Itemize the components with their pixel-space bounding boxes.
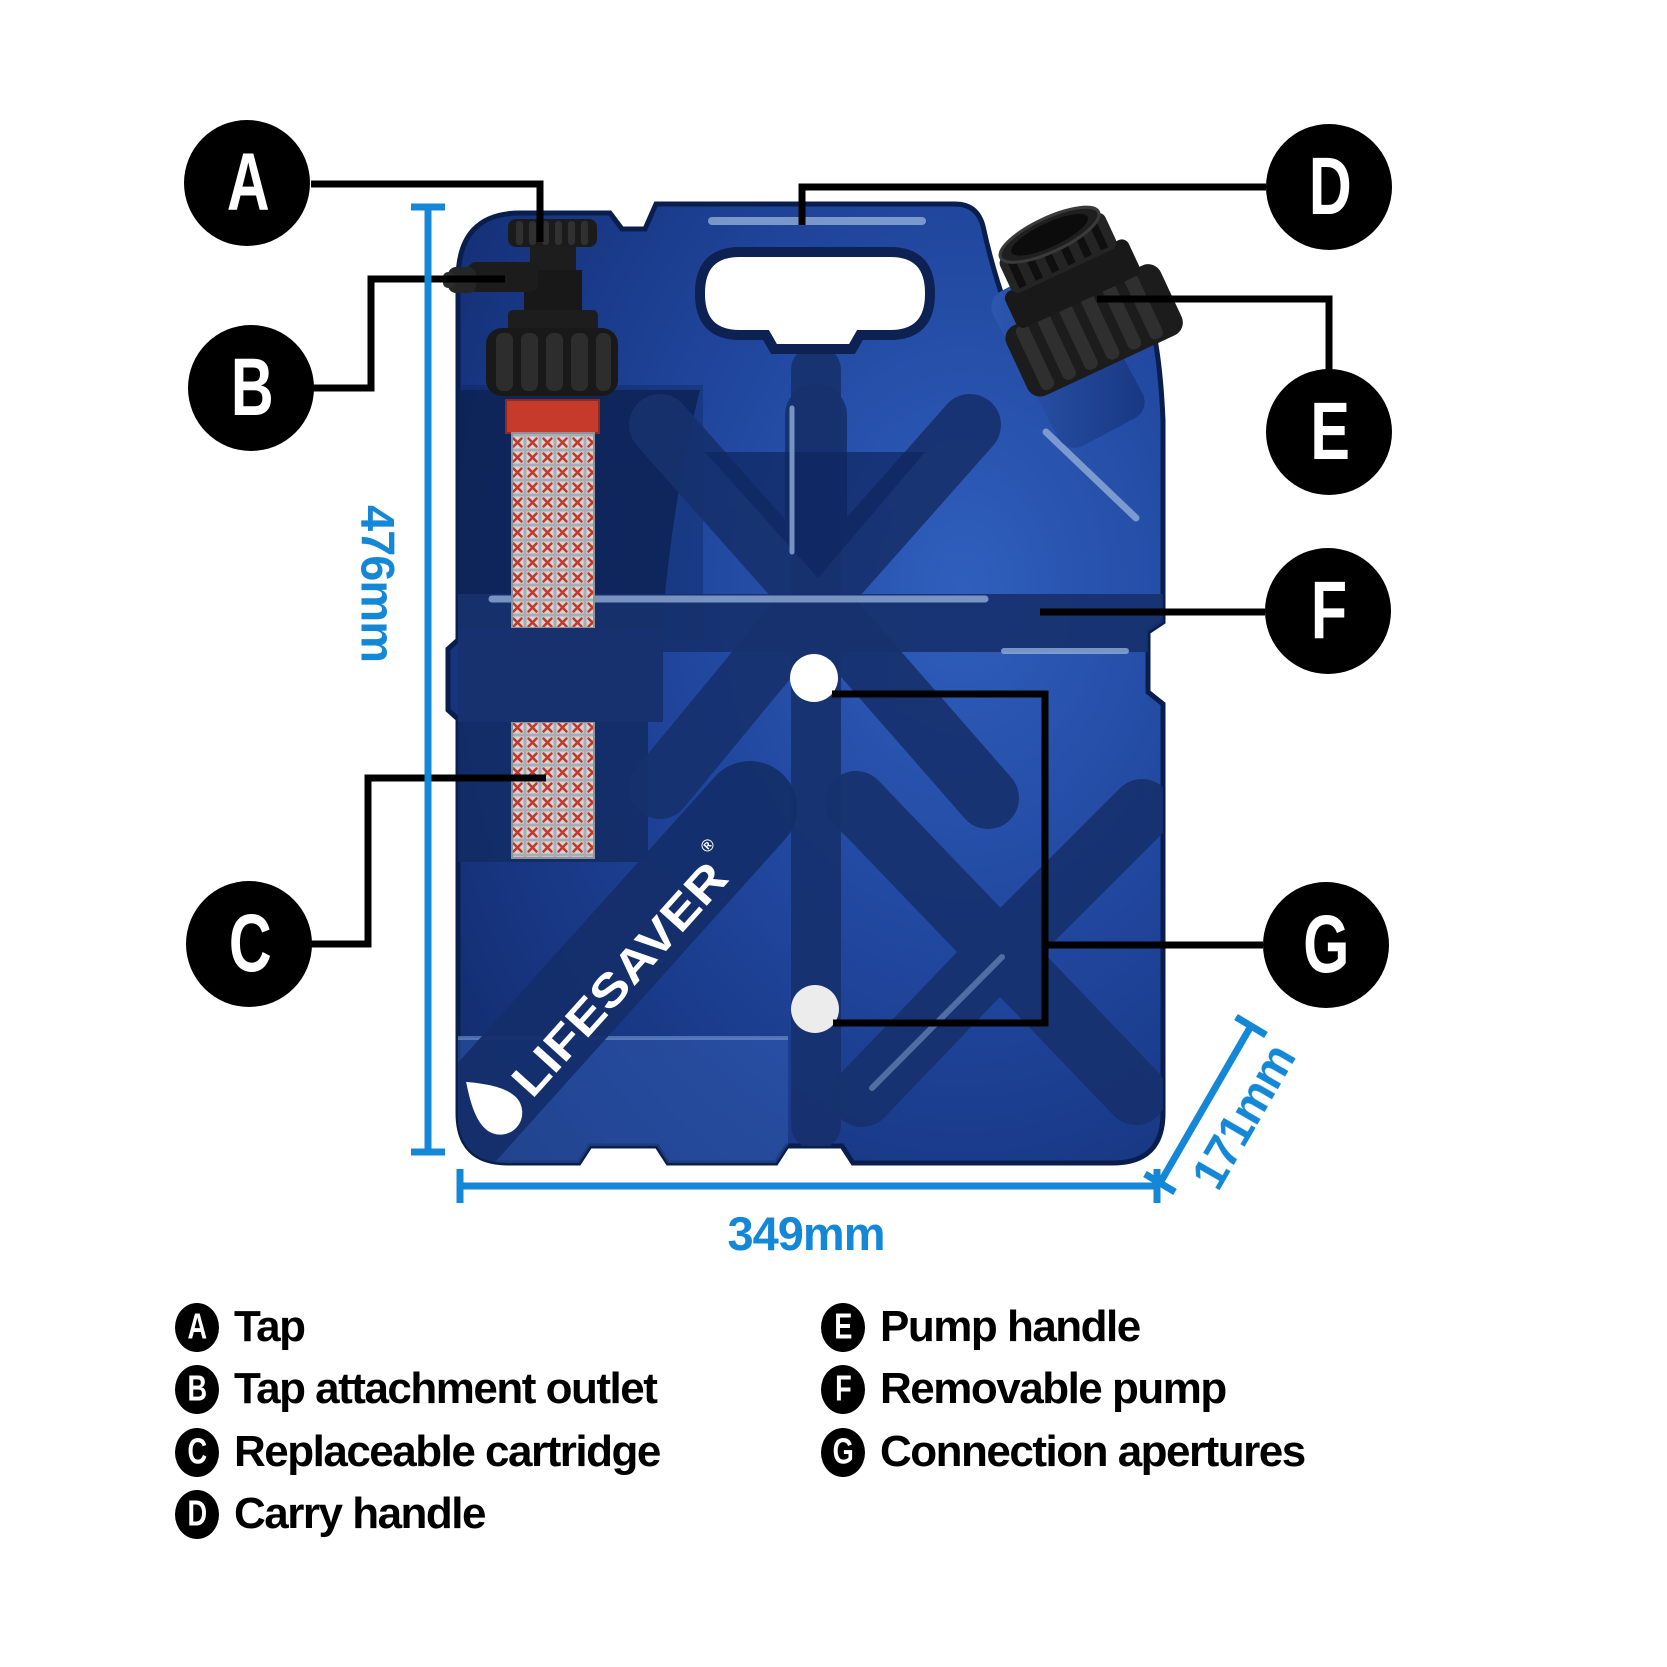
connection-aperture-bottom	[791, 985, 839, 1033]
height-dimension-label: 476mm	[351, 464, 406, 704]
legend-badge-a: A	[175, 1303, 219, 1352]
legend-item-removable-pump: F Removable pump	[821, 1363, 1226, 1415]
legend-item-tap-attachment-outlet: B Tap attachment outlet	[175, 1363, 656, 1415]
callout-marker-f: F	[1265, 548, 1391, 674]
carry-handle-hole	[700, 252, 930, 349]
callout-marker-b: B	[188, 325, 314, 451]
height-dimension-line	[411, 207, 445, 1152]
diagram-canvas: LIFESAVER ®	[0, 0, 1667, 1667]
jerrycan-illustration: LIFESAVER ®	[0, 0, 1667, 1667]
legend-badge-f: F	[821, 1365, 865, 1414]
legend-item-pump-handle: E Pump handle	[821, 1301, 1140, 1353]
callout-marker-a: A	[184, 120, 310, 246]
callout-marker-g: G	[1263, 882, 1389, 1008]
callout-marker-d: D	[1266, 124, 1392, 250]
legend-item-replaceable-cartridge: C Replaceable cartridge	[175, 1426, 660, 1478]
legend-badge-d: D	[175, 1490, 219, 1539]
legend-item-carry-handle: D Carry handle	[175, 1488, 485, 1540]
legend-item-connection-apertures: G Connection apertures	[821, 1426, 1305, 1478]
connection-aperture-top	[790, 654, 838, 702]
legend-badge-b: B	[175, 1365, 219, 1414]
legend-badge-e: E	[821, 1303, 865, 1352]
legend-item-tap: A Tap	[175, 1301, 304, 1353]
legend-badge-c: C	[175, 1428, 219, 1477]
width-dimension-line	[460, 1169, 1157, 1203]
legend-badge-g: G	[821, 1428, 865, 1477]
width-dimension-label: 349mm	[656, 1206, 956, 1261]
callout-marker-e: E	[1266, 369, 1392, 495]
callout-marker-c: C	[186, 881, 312, 1007]
